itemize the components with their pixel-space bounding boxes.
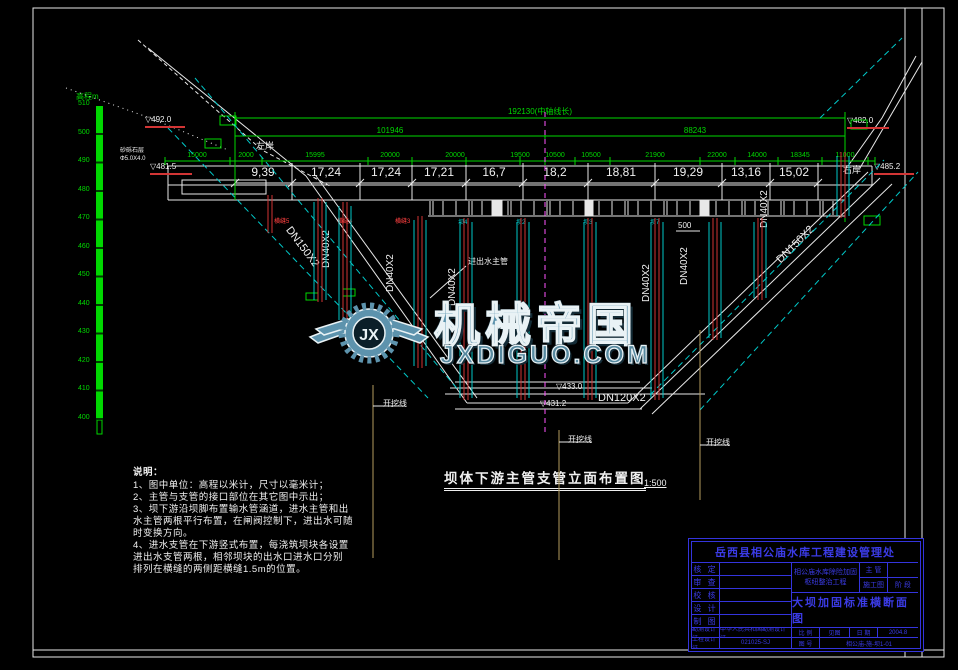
tb-row-label: 校 核 [692, 589, 720, 602]
tb-row-value [720, 589, 792, 602]
tb-no-value: 相公庙-施-坝1-01 [820, 638, 918, 648]
tb-project: 相公庙水库除险加固枢纽整治工程 [792, 563, 860, 593]
tb-row-value [720, 602, 792, 615]
tb-cert1-label: 勘测设计证 [692, 628, 720, 638]
title-block-org: 岳西县相公庙水库工程建设管理处 [692, 542, 918, 563]
tb-row-label: 设 计 [692, 602, 720, 615]
tb-row-label: 制 图 [692, 615, 720, 628]
tb-scale-value: 见图 [820, 628, 850, 638]
watermark: JX 机械帝国 JXDIGUO.COM [308, 293, 728, 377]
watermark-monogram: JX [359, 327, 379, 344]
tb-row-value [720, 563, 792, 576]
tb-scale-label: 比 例 [792, 628, 820, 638]
cad-sheet: 高程m 510 500 490 480 470 460 450 440 430 … [0, 0, 958, 670]
watermark-logo: JX [308, 299, 430, 369]
tb-row-label: 审 查 [692, 576, 720, 589]
tb-stage-label: 施工图 [860, 578, 888, 593]
tb-cert2-value: 021025-SJ [720, 638, 792, 648]
elevation-scale-bar [96, 106, 103, 434]
tb-row-value [720, 576, 792, 589]
tb-chief-label: 主 管 [860, 563, 888, 578]
tb-row-value [720, 615, 792, 628]
tb-cert1-value: 中华人民共和国勘测设计证 [720, 628, 792, 638]
crest-band-ticks [430, 201, 833, 215]
elevation-underlines [145, 127, 914, 174]
tb-date-value: 2004.8 [878, 628, 918, 638]
tb-stage-value: 阶 段 [888, 578, 918, 593]
title-block-inner: 岳西县相公庙水库工程建设管理处 核 定 审 查 校 核 设 计 制 图 勘测设计… [691, 541, 921, 649]
crest-lines [168, 166, 872, 216]
tb-drawing-title: 大坝加固标准横断面图 [792, 593, 918, 628]
title-block: 岳西县相公庙水库工程建设管理处 核 定 审 查 校 核 设 计 制 图 勘测设计… [688, 538, 924, 652]
tb-row-label: 核 定 [692, 563, 720, 576]
watermark-site: JXDIGUO.COM [440, 341, 651, 370]
tb-date-label: 日 期 [850, 628, 878, 638]
tb-chief-value [888, 563, 918, 578]
tb-no-label: 图 号 [792, 638, 820, 648]
tb-cert2-label: 工程设计证 [692, 638, 720, 648]
